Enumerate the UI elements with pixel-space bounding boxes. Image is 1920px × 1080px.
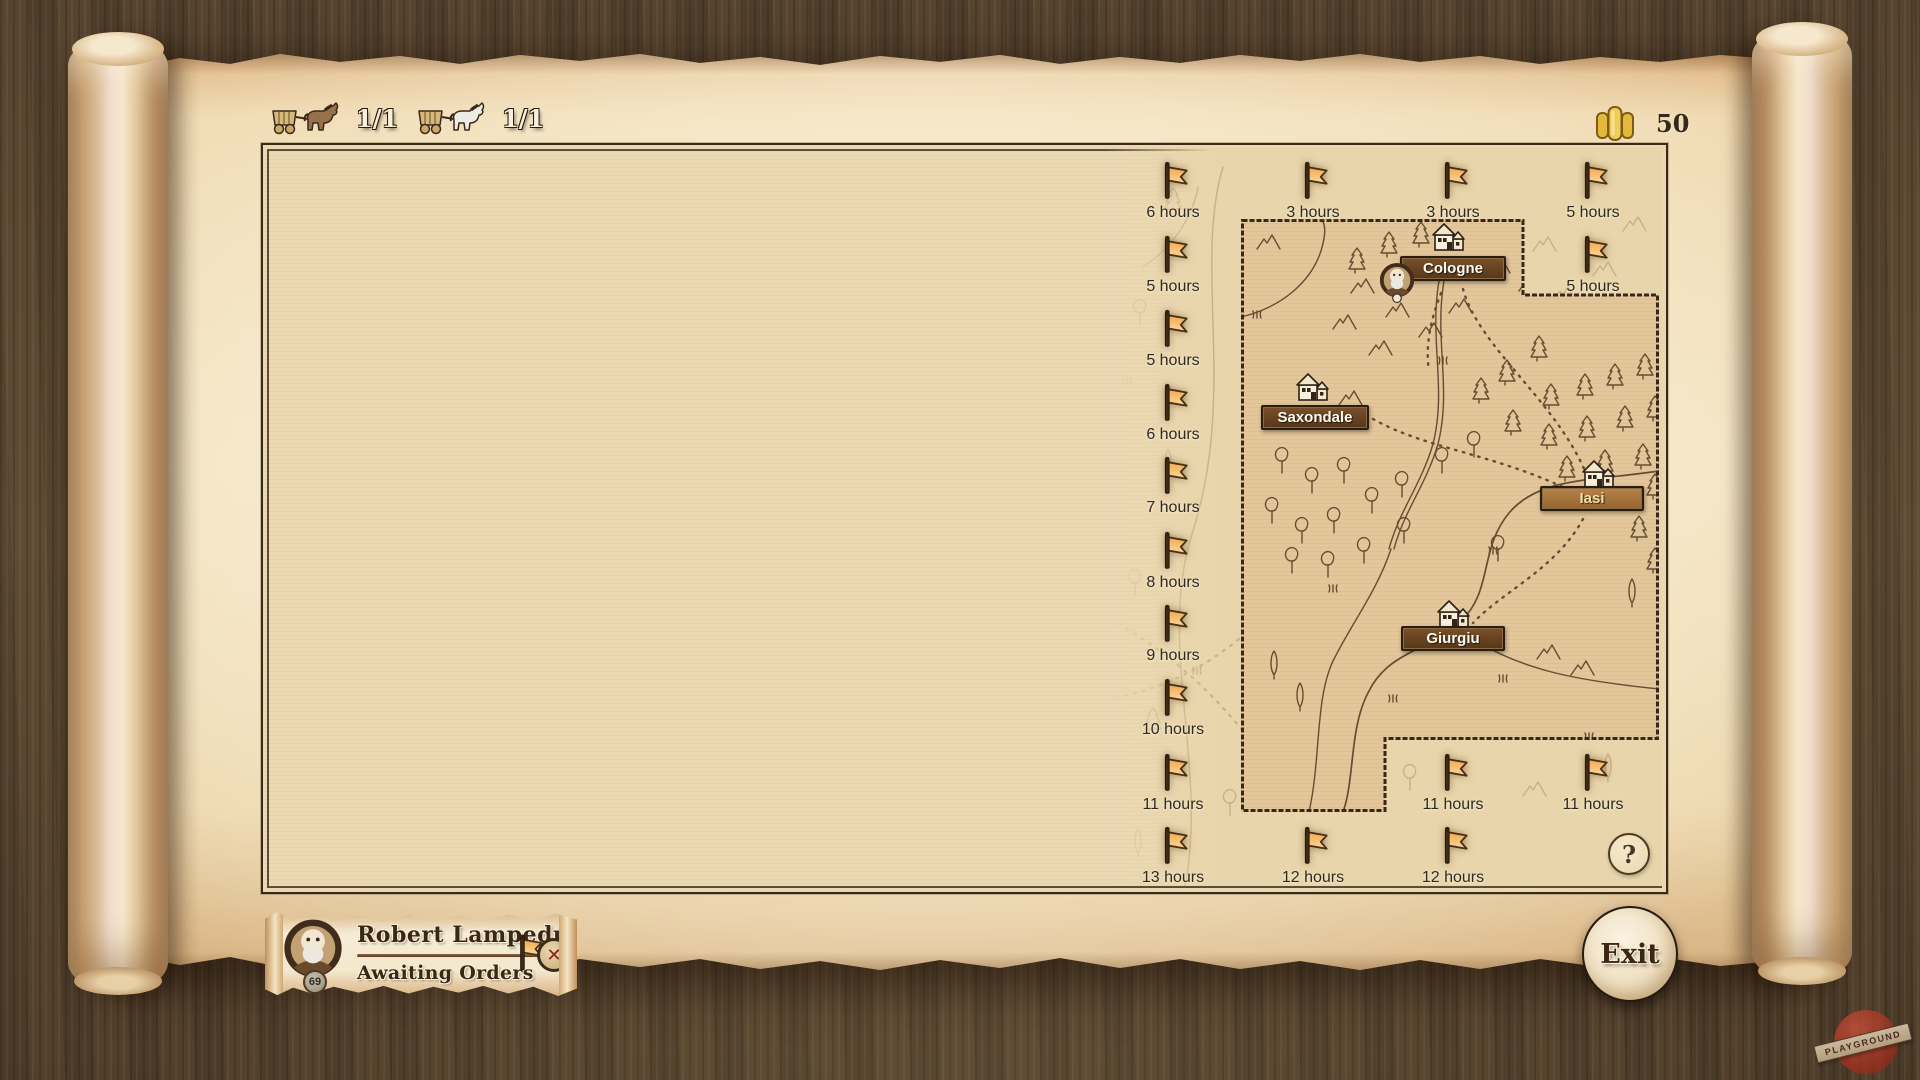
playground-logo: PLAYGROUND: [1818, 1002, 1920, 1080]
flag-label: 12 hours: [1282, 869, 1344, 887]
house-icon: [1430, 222, 1466, 252]
travel-flag[interactable]: 3 hours: [1403, 160, 1503, 222]
flag-label: 12 hours: [1422, 869, 1484, 887]
scroll-roll-right: [1752, 26, 1852, 982]
flag-label: 9 hours: [1146, 647, 1199, 665]
help-button[interactable]: ?: [1608, 833, 1650, 875]
dismiss-button[interactable]: ✕: [537, 938, 571, 972]
cart-white-horse-icon: [416, 98, 490, 138]
flag-icon: [1157, 234, 1189, 276]
flag-icon: [1157, 308, 1189, 350]
house-icon: [1435, 599, 1471, 629]
travel-flag[interactable]: 7 hours: [1123, 455, 1223, 517]
flag-label: 6 hours: [1146, 426, 1199, 444]
player-avatar-icon[interactable]: [1378, 262, 1416, 304]
travel-flag[interactable]: 3 hours: [1263, 160, 1363, 222]
game-screen: 1/1 1/1: [0, 0, 1920, 1080]
top-bar: 1/1 1/1: [0, 0, 1920, 150]
flag-label: 5 hours: [1146, 352, 1199, 370]
level-badge: 69: [303, 970, 327, 994]
flag-label: 13 hours: [1142, 869, 1204, 887]
cart-brown-horse-icon: [270, 98, 344, 138]
flag-icon: [1157, 382, 1189, 424]
travel-flag[interactable]: 5 hours: [1543, 234, 1643, 296]
flag-label: 10 hours: [1142, 721, 1204, 739]
travel-flag[interactable]: 12 hours: [1403, 825, 1503, 887]
town-banner-giurgiu[interactable]: Giurgiu: [1401, 626, 1505, 651]
travel-flag[interactable]: 11 hours: [1543, 752, 1643, 814]
flag-label: 11 hours: [1142, 796, 1203, 814]
caravan-count: 1/1: [502, 104, 544, 133]
flag-icon: [1297, 160, 1329, 202]
character-status: Awaiting Orders: [357, 962, 534, 984]
flag-icon: [1157, 160, 1189, 202]
caravan-slot-1[interactable]: 1/1: [270, 98, 398, 138]
character-name: Robert Lampedusa: [357, 922, 597, 948]
flag-label: 6 hours: [1146, 204, 1199, 222]
caravan-slot-2[interactable]: 1/1: [416, 98, 544, 138]
exit-button[interactable]: Exit: [1582, 906, 1678, 1002]
scroll-roll-left: [68, 36, 168, 992]
town-iasi: Iasi: [1540, 459, 1650, 523]
flag-label: 8 hours: [1146, 574, 1199, 592]
house-icon: [1294, 372, 1330, 402]
coins-icon: [1592, 102, 1638, 144]
flag-icon: [1577, 752, 1609, 794]
flag-label: 3 hours: [1426, 204, 1479, 222]
flag-icon: [1577, 234, 1609, 276]
caravan-count: 1/1: [356, 104, 398, 133]
flag-label: 7 hours: [1146, 499, 1199, 517]
travel-flag[interactable]: 13 hours: [1123, 825, 1223, 887]
flag-icon: [1437, 160, 1469, 202]
travel-flag[interactable]: 5 hours: [1543, 160, 1643, 222]
flag-label: 3 hours: [1286, 204, 1339, 222]
flag-label: 5 hours: [1566, 204, 1619, 222]
travel-flag[interactable]: 8 hours: [1123, 530, 1223, 592]
town-saxondale: Saxondale: [1261, 372, 1371, 436]
flag-icon: [1157, 677, 1189, 719]
house-icon: [1580, 459, 1616, 489]
travel-flag[interactable]: 12 hours: [1263, 825, 1363, 887]
character-card[interactable]: 69 Robert Lampedusa Awaiting Orders ✕: [265, 912, 577, 996]
travel-flag[interactable]: 11 hours: [1403, 752, 1503, 814]
travel-flag[interactable]: 11 hours: [1123, 752, 1223, 814]
town-banner-saxondale[interactable]: Saxondale: [1261, 405, 1369, 430]
flag-icon: [1437, 752, 1469, 794]
travel-flag[interactable]: 5 hours: [1123, 234, 1223, 296]
flag-icon: [1157, 752, 1189, 794]
flag-icon: [1157, 825, 1189, 867]
travel-flag[interactable]: 9 hours: [1123, 603, 1223, 665]
town-cologne: Cologne: [1378, 222, 1518, 302]
flag-label: 11 hours: [1422, 796, 1483, 814]
town-banner-iasi[interactable]: Iasi: [1540, 486, 1644, 511]
flag-icon: [1157, 455, 1189, 497]
flag-label: 11 hours: [1562, 796, 1623, 814]
gold-counter: 50: [1592, 102, 1689, 144]
gold-amount: 50: [1656, 109, 1689, 138]
travel-flag[interactable]: 6 hours: [1123, 382, 1223, 444]
flag-icon: [1157, 530, 1189, 572]
travel-flag[interactable]: 5 hours: [1123, 308, 1223, 370]
flag-label: 5 hours: [1146, 278, 1199, 296]
flag-icon: [1157, 603, 1189, 645]
town-giurgiu: Giurgiu: [1401, 599, 1511, 663]
flag-icon: [1577, 160, 1609, 202]
travel-flag[interactable]: 10 hours: [1123, 677, 1223, 739]
close-icon: ✕: [546, 945, 561, 966]
flag-icon: [1297, 825, 1329, 867]
travel-flag[interactable]: 6 hours: [1123, 160, 1223, 222]
flag-label: 5 hours: [1566, 278, 1619, 296]
flag-icon: [1437, 825, 1469, 867]
